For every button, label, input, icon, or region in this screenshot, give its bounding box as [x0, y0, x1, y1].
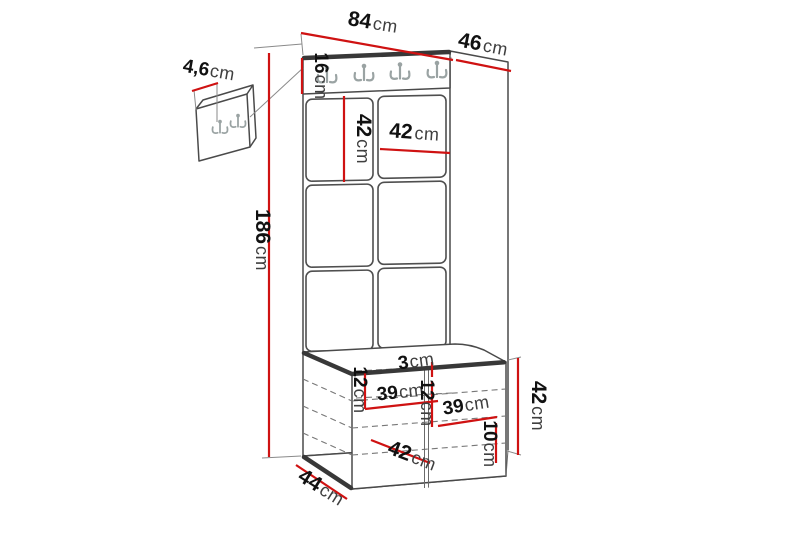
dim-unit: cm [353, 139, 373, 164]
dim-value: 10 [479, 420, 500, 441]
dim-unit: cm [208, 60, 236, 84]
dim-unit: cm [463, 392, 491, 416]
wall-hook-panel-detail [196, 68, 303, 161]
dim-value: 39 [441, 396, 465, 420]
diagram-canvas: 84cm 46cm 186cm 16cm 4,6cm 42cm 42cm 3cm [0, 0, 800, 533]
dim-right-shelf-height: 12cm [416, 379, 437, 427]
svg-text:4,6cm: 4,6cm [181, 56, 236, 86]
dim-value: 42 [352, 114, 375, 137]
svg-text:46cm: 46cm [456, 29, 510, 61]
svg-text:84cm: 84cm [346, 7, 399, 38]
svg-text:42cm: 42cm [527, 381, 550, 431]
dim-bottom-shelf-height: 10cm [479, 420, 500, 467]
tile [378, 181, 446, 264]
dim-unit: cm [372, 13, 400, 37]
svg-text:10cm: 10cm [479, 420, 500, 467]
dim-total-height: 186cm [251, 44, 302, 458]
tile [378, 267, 446, 348]
dim-unit: cm [311, 75, 331, 100]
dim-value: 4,6 [181, 56, 211, 81]
svg-text:42cm: 42cm [352, 114, 375, 164]
tile [306, 270, 373, 351]
dim-bench-height: 42cm [507, 357, 550, 455]
dim-value: 84 [346, 7, 373, 33]
dim-value: 39 [376, 382, 399, 405]
dim-value: 12 [349, 366, 370, 387]
dim-left-shelf-height: 12cm [349, 366, 370, 413]
svg-text:186cm: 186cm [251, 209, 274, 271]
dim-unit: cm [414, 123, 440, 145]
dim-unit: cm [417, 402, 437, 427]
dim-top-depth: 46cm [456, 29, 511, 71]
dim-unit: cm [480, 443, 500, 468]
detail-leader-line [250, 68, 303, 117]
shelf-depth-dashes [303, 379, 352, 455]
dim-unit: cm [252, 246, 272, 271]
svg-text:12cm: 12cm [416, 379, 437, 426]
dim-value: 42 [527, 381, 550, 404]
dim-value: 186 [251, 209, 274, 244]
tile [306, 184, 373, 267]
dim-unit: cm [528, 406, 548, 431]
svg-text:16cm: 16cm [310, 52, 331, 99]
dim-value: 46 [456, 29, 483, 56]
dim-unit: cm [481, 35, 509, 59]
svg-text:12cm: 12cm [349, 366, 370, 413]
dim-unit: cm [408, 349, 436, 372]
dim-value: 12 [416, 379, 437, 400]
dim-value: 42 [389, 119, 414, 144]
furniture-dimension-diagram: 84cm 46cm 186cm 16cm 4,6cm 42cm 42cm 3cm [0, 0, 800, 533]
dim-value: 16 [310, 52, 331, 73]
